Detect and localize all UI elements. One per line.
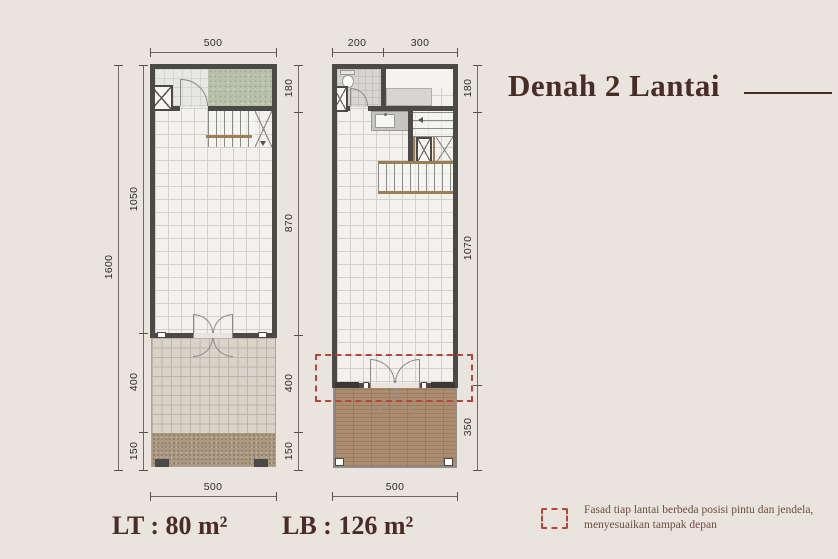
dim-label: 1600 <box>103 255 115 280</box>
gate-post <box>155 459 169 467</box>
dim-tick <box>139 333 148 334</box>
dim-label: 500 <box>204 37 222 49</box>
balcony-corner-post <box>335 458 344 466</box>
dim-label: 400 <box>128 373 140 391</box>
dim-line <box>150 496 277 497</box>
carport-boundary <box>151 338 152 467</box>
exterior-wall-right <box>272 64 277 338</box>
stair-handrail <box>433 137 435 163</box>
stair-direction-arrow <box>260 141 266 146</box>
dim-line <box>150 52 277 53</box>
dim-label: 500 <box>204 481 222 493</box>
dim-tick <box>383 48 384 57</box>
stair-handrail <box>206 135 252 138</box>
dim-line <box>298 65 299 470</box>
dim-tick <box>332 492 333 501</box>
balcony-corner-post <box>444 458 453 466</box>
dim-tick <box>473 112 482 113</box>
dim-label: 1050 <box>128 187 140 212</box>
interior-wall <box>208 106 272 111</box>
title-underline <box>744 92 832 94</box>
dim-tick <box>114 65 123 66</box>
lb-prefix: LB : <box>282 511 332 540</box>
stair-void-x-box <box>416 137 432 163</box>
dim-tick <box>332 48 333 57</box>
floor-plan-sheet: Denah 2 Lantai <box>0 0 838 559</box>
lt-prefix: LT : <box>112 511 159 540</box>
dim-tick <box>473 470 482 471</box>
legend-text: Fasad tiap lantai berbeda posisi pintu d… <box>584 503 834 533</box>
gate-post <box>254 459 268 467</box>
dim-tick <box>150 48 151 57</box>
dim-line <box>332 496 458 497</box>
dim-tick <box>276 48 277 57</box>
dim-tick <box>294 470 303 471</box>
legend-line-2: menyesuaikan tampak depan <box>584 519 717 531</box>
stair-handrail <box>413 137 415 163</box>
staircase-upper-treads <box>413 111 453 137</box>
legend-line-1: Fasad tiap lantai berbeda posisi pintu d… <box>584 504 813 516</box>
dim-label: 350 <box>462 418 474 436</box>
facade-highlight-box <box>315 354 473 402</box>
dim-label: 500 <box>386 481 404 493</box>
page-title: Denah 2 Lantai <box>508 68 720 104</box>
dim-tick <box>294 432 303 433</box>
dim-line <box>477 65 478 470</box>
dim-label: 400 <box>283 374 295 392</box>
dim-tick <box>150 492 151 501</box>
exterior-wall-top <box>150 64 277 69</box>
stair-direction-arrow <box>418 117 423 123</box>
exterior-wall-right <box>453 64 458 388</box>
dim-label: 150 <box>128 442 140 460</box>
garden-area <box>208 69 272 107</box>
staircase-winder <box>436 137 453 163</box>
kitchen-sink <box>375 114 395 128</box>
lt-value: 80 m² <box>166 511 228 540</box>
exterior-wall-left <box>150 64 155 338</box>
second-floor-plan <box>332 64 458 470</box>
dim-label: 300 <box>411 37 429 49</box>
carport-boundary <box>275 338 276 467</box>
dashed-box-icon <box>541 508 568 529</box>
dim-label: 180 <box>283 79 295 97</box>
dim-tick <box>294 65 303 66</box>
dim-label: 180 <box>462 79 474 97</box>
dim-tick <box>294 112 303 113</box>
dim-tick <box>276 492 277 501</box>
void-area <box>386 69 453 88</box>
dim-tick <box>473 65 482 66</box>
dim-label: 870 <box>283 214 295 232</box>
exterior-wall-top <box>332 64 458 69</box>
dim-tick <box>457 492 458 501</box>
dim-line <box>143 65 144 470</box>
kitchen-counter-upper <box>386 88 432 106</box>
dim-tick <box>114 470 123 471</box>
lb-value: 126 m² <box>338 511 413 540</box>
dim-line <box>332 52 458 53</box>
dim-line <box>118 65 119 470</box>
area-label-lb: LB : 126 m² <box>282 511 413 541</box>
carport-paving <box>152 338 275 433</box>
sink-faucet <box>384 113 387 116</box>
staircase-lower-treads <box>378 164 453 191</box>
area-label-lt: LT : 80 m² <box>112 511 227 541</box>
dim-label: 1070 <box>462 236 474 261</box>
dim-tick <box>294 335 303 336</box>
stair-handrail <box>378 161 453 164</box>
dim-tick <box>139 470 148 471</box>
ground-floor-plan <box>150 64 277 470</box>
dim-tick <box>139 432 148 433</box>
dim-tick <box>139 65 148 66</box>
staircase-treads <box>208 111 255 147</box>
dim-tick <box>473 385 482 386</box>
stair-handrail <box>378 191 453 194</box>
dim-label: 150 <box>283 442 295 460</box>
exterior-wall-left <box>332 64 337 388</box>
dim-label: 200 <box>348 37 366 49</box>
dim-tick <box>457 48 458 57</box>
